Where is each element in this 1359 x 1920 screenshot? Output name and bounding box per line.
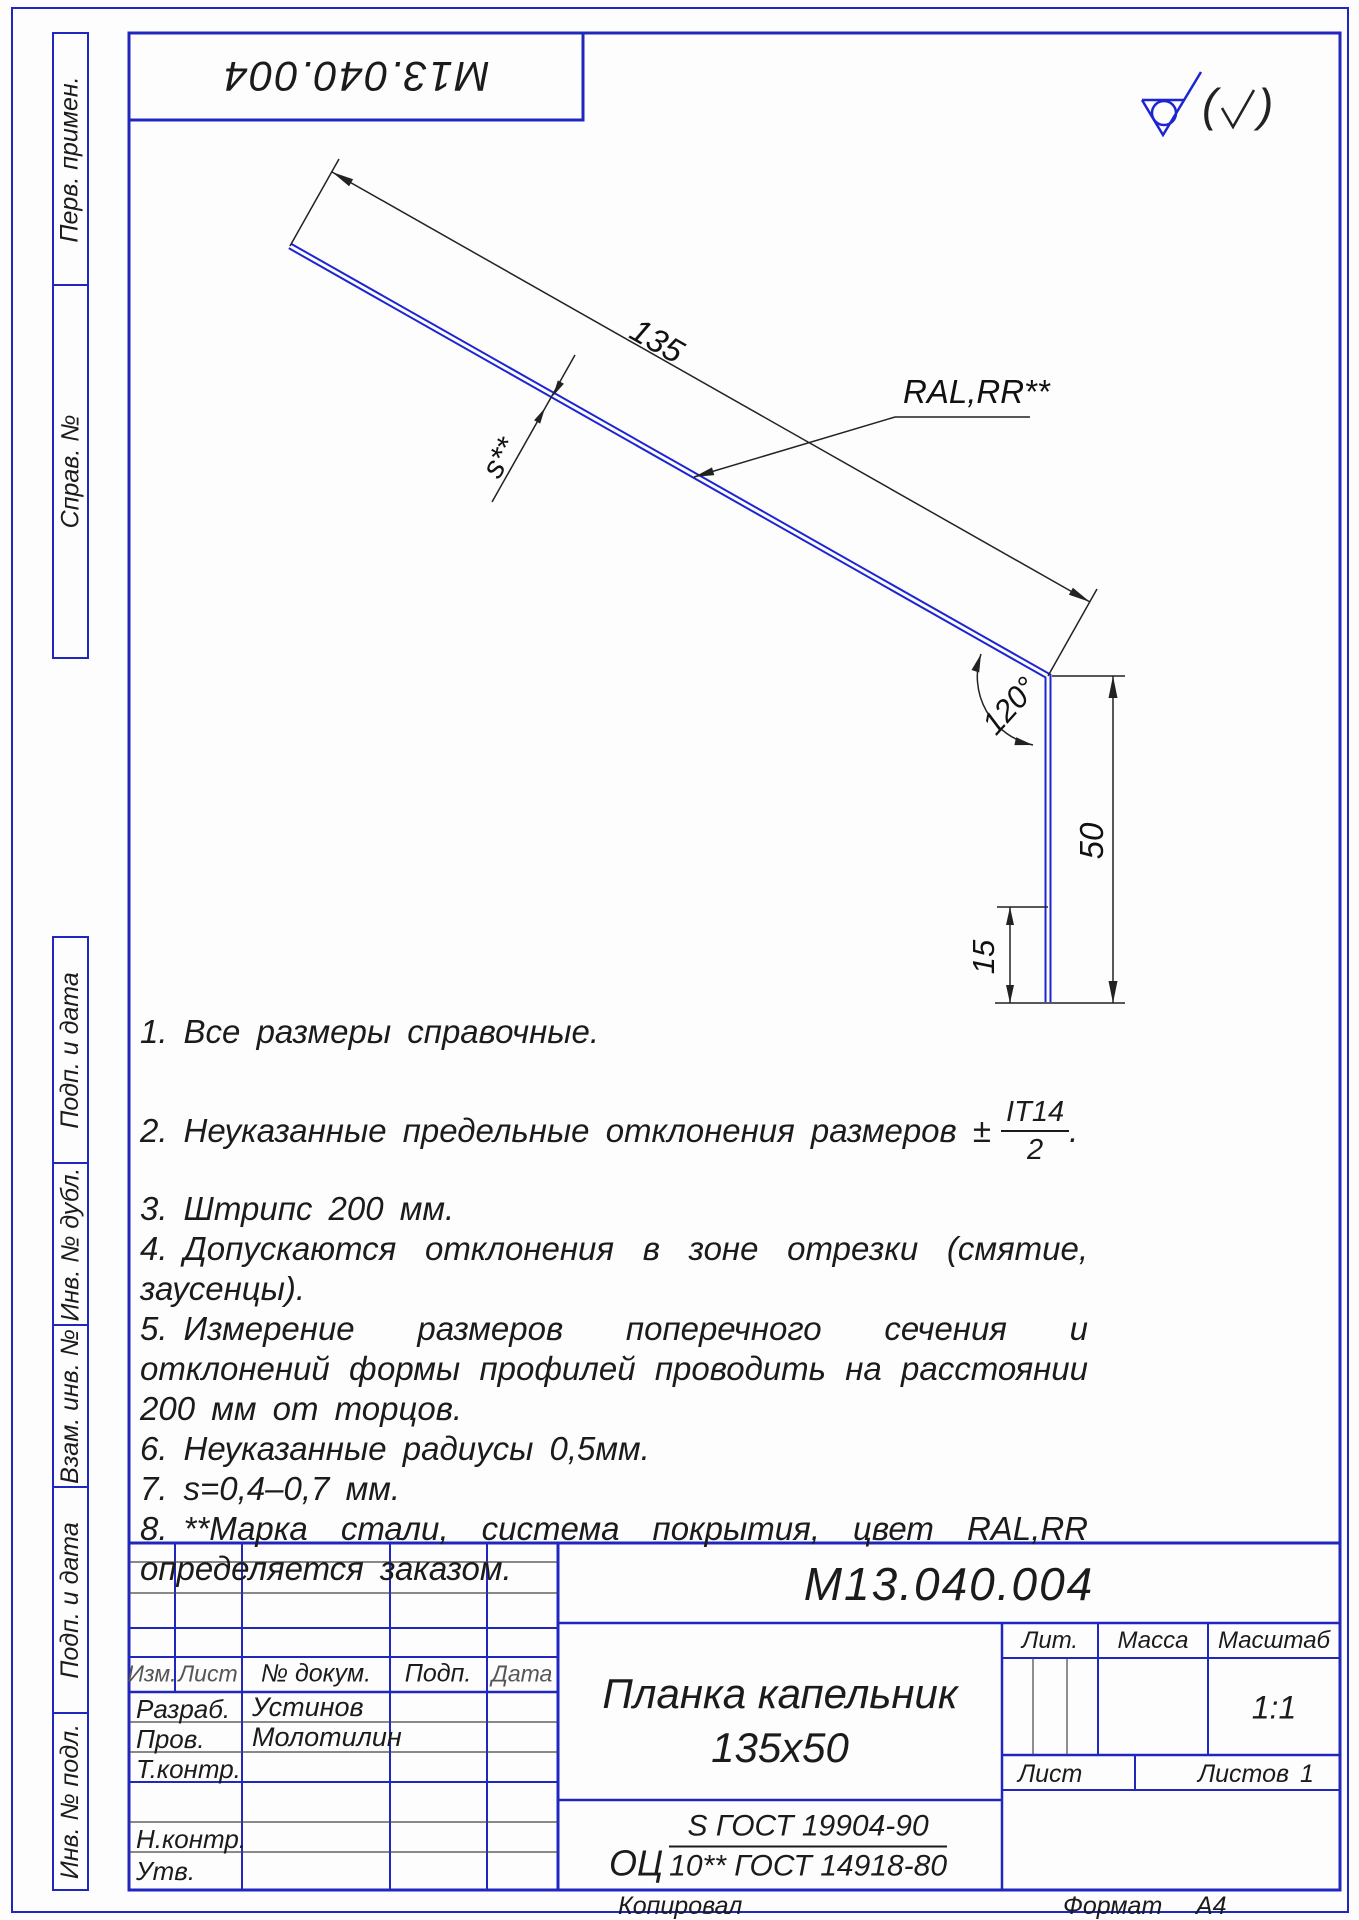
note-number: 1. [140,1013,168,1050]
inner-frame [129,33,1340,1890]
note-text: Допускаются отклонения в зоне отрезки (с… [140,1230,1088,1307]
roughness-paren-close: ) [1258,82,1273,128]
sidebar-label: Подп. и дата [56,972,85,1129]
row-razrab-label: Разраб. [136,1694,230,1725]
row-razrab-name: Устинов [252,1692,364,1723]
col-doc: № докум. [261,1660,371,1689]
lit-label: Лит. [1022,1627,1078,1655]
row-utv-label: Утв. [136,1856,195,1887]
dim-label-15: 15 [966,940,1002,974]
part-name-line2: 135x50 [711,1724,849,1772]
sidebar-item-sprav-no: Справ. № [53,285,88,658]
masshtab-label: Масштаб [1218,1627,1330,1655]
sidebar-label: Справ. № [56,415,85,529]
note-text: Неуказанные радиусы 0,5мм. [184,1430,650,1467]
note-number: 2. [140,1111,168,1151]
material-top: S ГОСТ 19904-90 [669,1808,947,1848]
sidebar-label: Перв. примен. [56,76,85,242]
sidebar-item-podp-data-1: Подп. и дата [53,937,88,1163]
note-number: 6. [140,1430,168,1467]
col-data: Дата [492,1661,553,1688]
doc-number: М13.040.004 [804,1557,1095,1611]
row-nkontr-label: Н.контр. [136,1824,246,1855]
technical-notes: 1.Все размеры справочные. 2. Неуказанные… [140,1012,1088,1589]
footer-copied: Копировал [618,1892,742,1920]
sidebar-label: Подп. и дата [56,1522,85,1679]
col-izm: Изм. [127,1661,176,1688]
row-prov-label: Пров. [136,1724,205,1755]
row-tkontr-label: Т.контр. [136,1754,241,1785]
roughness-paren-open: ( [1202,82,1217,128]
dim-label-coating: RAL,RR** [903,373,1050,411]
list-label: Лист [1018,1760,1082,1789]
fraction-numerator: IT14 [1001,1094,1069,1132]
dimension-lines [290,159,1125,1003]
note-number: 4. [140,1230,168,1267]
sidebar-label: Инв. № дубл. [56,1167,85,1321]
note-5: 5.Измерение размеров поперечного сечения… [140,1309,1088,1429]
part-name-line1: Планка капельник [602,1670,957,1718]
footer-format-value: А4 [1196,1892,1227,1920]
note-text: Все размеры справочные. [184,1013,600,1050]
sidebar-item-podp-data-2: Подп. и дата [53,1487,88,1713]
listov-value: 1 [1300,1760,1314,1789]
dimension-arrows [332,172,1118,1003]
leader-coating [694,417,1030,477]
roughness-icon [1142,72,1254,135]
col-podp: Подп. [405,1660,472,1689]
note-7: 7.s=0,4–0,7 мм. [140,1469,1088,1509]
ext-line-135-left [290,159,339,246]
material-bottom: 10** ГОСТ 14918-80 [669,1847,947,1885]
sidebar-label: Инв. № подл. [56,1724,85,1879]
sidebar-item-perv-primen: Перв. примен. [53,33,88,285]
footer-format-label: Формат [1063,1892,1162,1920]
col-list: Лист [178,1661,237,1688]
check-icon [1222,90,1254,127]
note-3: 3.Штрипс 200 мм. [140,1189,1088,1229]
note-text: Штрипс 200 мм. [184,1190,455,1227]
note-6: 6.Неуказанные радиусы 0,5мм. [140,1429,1088,1469]
sidebar-label: Взам. инв. № [56,1329,85,1484]
sidebar-item-inv-podl: Инв. № подл. [53,1713,88,1890]
top-stamp-code: М13.040.004 [129,33,583,120]
massa-label: Масса [1118,1627,1189,1655]
listov-label: Листов [1198,1760,1289,1789]
scale-value: 1:1 [1252,1690,1296,1727]
row-prov-name: Молотилин [252,1722,402,1753]
material-spec: ОЦ S ГОСТ 19904-90 10** ГОСТ 14918-80 [609,1808,947,1885]
note-number: 8. [140,1510,168,1547]
note-number: 7. [140,1470,168,1507]
material-fraction: S ГОСТ 19904-90 10** ГОСТ 14918-80 [669,1808,947,1885]
note-number: 5. [140,1310,168,1347]
note-1: 1.Все размеры справочные. [140,1012,1088,1052]
note-text: Измерение размеров поперечного сечения и… [140,1310,1088,1427]
sidebar-item-inv-dubl: Инв. № дубл. [53,1163,88,1325]
tolerance-fraction: IT14 2 [1001,1094,1069,1169]
dim-label-50: 50 [1073,823,1111,860]
drawing-sheet: М13.040.004 ( ) Перв. примен. Справ. № П… [0,0,1359,1920]
note-4: 4.Допускаются отклонения в зоне отрезки … [140,1229,1088,1309]
material-prefix: ОЦ [609,1843,663,1885]
note-tail: . [1069,1111,1078,1151]
sidebar-item-vzam-inv: Взам. инв. № [53,1325,88,1487]
note-text: s=0,4–0,7 мм. [184,1470,400,1507]
note-number: 3. [140,1190,168,1227]
note-text: Неуказанные предельные отклонения размер… [184,1111,992,1151]
fraction-denominator: 2 [1001,1132,1069,1168]
note-2: 2. Неуказанные предельные отклонения раз… [140,1094,1088,1169]
